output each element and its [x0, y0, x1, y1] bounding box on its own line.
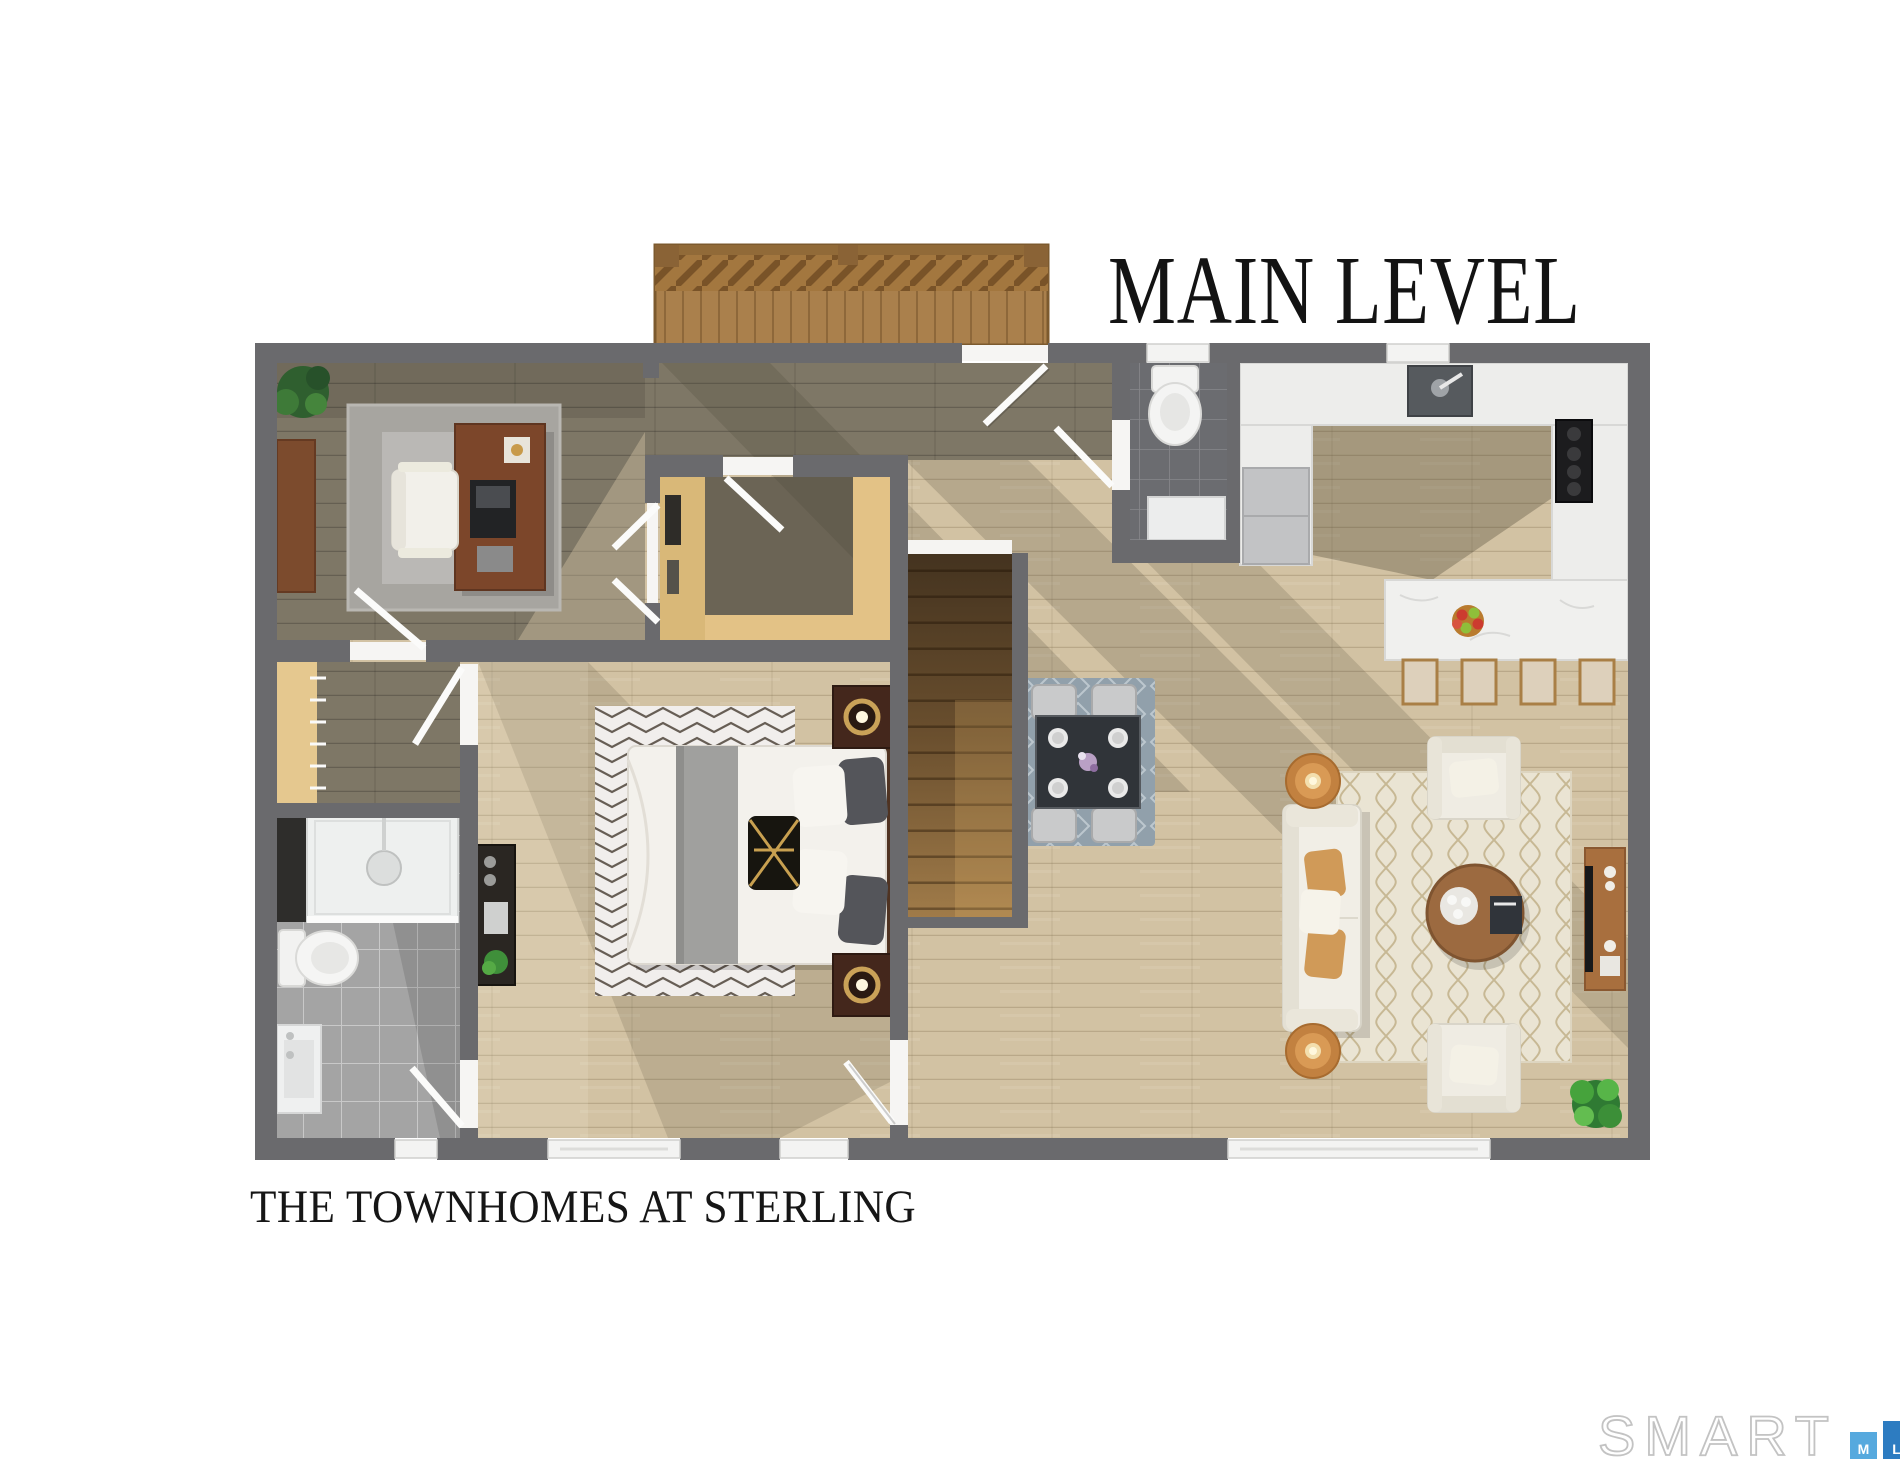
coffee-table-book — [1490, 896, 1522, 934]
closet-rod — [277, 662, 317, 803]
shower — [307, 813, 458, 923]
side-table-top — [1286, 754, 1340, 808]
bed-throw — [676, 746, 738, 964]
living-room-plant — [1570, 1079, 1622, 1128]
mls-bars: M L S — [1850, 1408, 1900, 1459]
bar-stool — [1403, 660, 1437, 704]
bar-stool — [1580, 660, 1614, 704]
window — [780, 1140, 848, 1158]
sofa — [1283, 805, 1370, 1038]
floor-plan-rendering — [0, 0, 1900, 1482]
kitchen-island — [1385, 580, 1628, 660]
bar-stool — [1462, 660, 1496, 704]
coffee-table-flowers — [1440, 887, 1478, 925]
window — [1387, 344, 1449, 362]
wall-right — [1628, 343, 1650, 1160]
dining-chair — [1032, 808, 1076, 842]
office-console — [277, 440, 315, 592]
desk-tray — [477, 546, 513, 572]
nightstand-top — [833, 686, 891, 748]
entry-threshold — [962, 345, 1048, 361]
mls-bar-m: M — [1850, 1432, 1877, 1459]
dining-chair — [1092, 808, 1136, 842]
dining-table — [1036, 716, 1140, 808]
half-bath-toilet — [1149, 366, 1201, 445]
office-desk — [455, 424, 554, 596]
tv-screen — [1585, 866, 1593, 972]
tv-console — [1585, 848, 1625, 990]
development-caption: THE TOWNHOMES AT STERLING — [250, 1184, 916, 1231]
stair-threshold — [908, 540, 1012, 554]
dining-area — [1023, 678, 1155, 846]
throw-pillow — [1299, 889, 1342, 936]
window — [1147, 344, 1209, 362]
bedroom-dresser — [477, 845, 515, 985]
staircase — [908, 540, 1012, 917]
dining-chair — [1032, 685, 1076, 719]
side-table-bottom — [1286, 1024, 1340, 1078]
hanging-clothes — [665, 495, 681, 545]
armchair-top — [1428, 737, 1520, 819]
shower-niche — [277, 818, 307, 922]
kitchen-sink — [1408, 366, 1472, 416]
mls-bar-l: L — [1883, 1421, 1900, 1459]
floor-plan-page: MAIN LEVEL THE TOWNHOMES AT STERLING SMA… — [0, 0, 1900, 1482]
dresser-frame — [484, 902, 508, 934]
smart-mls-logo: SMART M L S — [1598, 1408, 1900, 1459]
bed — [628, 740, 906, 970]
cooktop — [1556, 420, 1592, 502]
wall-left — [255, 343, 277, 1160]
shower-head — [367, 851, 401, 885]
vanity-sink — [277, 1025, 321, 1113]
window — [395, 1140, 437, 1158]
dining-chair — [1092, 685, 1136, 719]
bar-stool — [1521, 660, 1555, 704]
office-chair — [392, 462, 458, 558]
fruit-bowl — [1452, 605, 1484, 637]
armchair-bottom — [1428, 1024, 1520, 1112]
page-title: MAIN LEVEL — [1108, 242, 1581, 340]
smart-wordmark: SMART — [1598, 1413, 1838, 1459]
deck — [655, 245, 1048, 345]
toilet — [279, 930, 358, 986]
half-bath-sink — [1148, 497, 1225, 540]
nightstand-bottom — [833, 954, 891, 1016]
shower-glass — [307, 916, 458, 923]
